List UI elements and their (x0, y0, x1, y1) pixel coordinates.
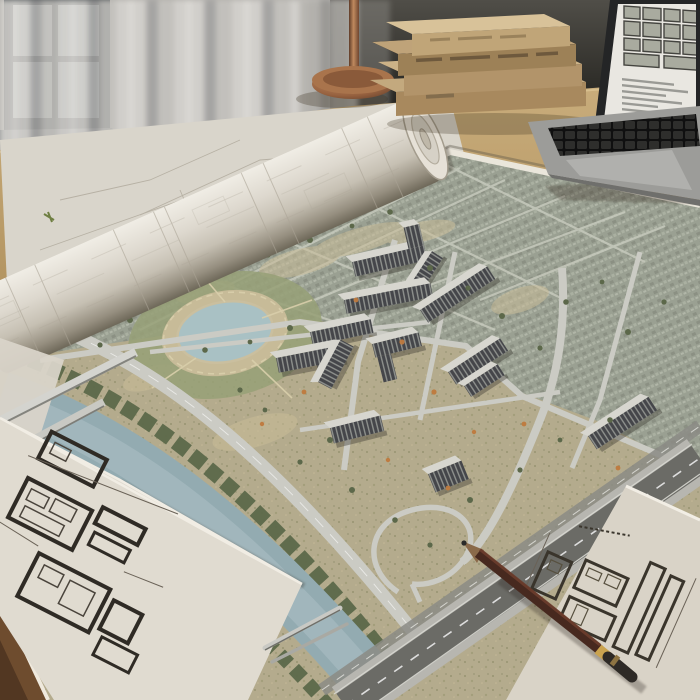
desk-scene (0, 0, 700, 700)
pencil-graphite (461, 540, 466, 545)
scene-canvas (0, 0, 700, 700)
